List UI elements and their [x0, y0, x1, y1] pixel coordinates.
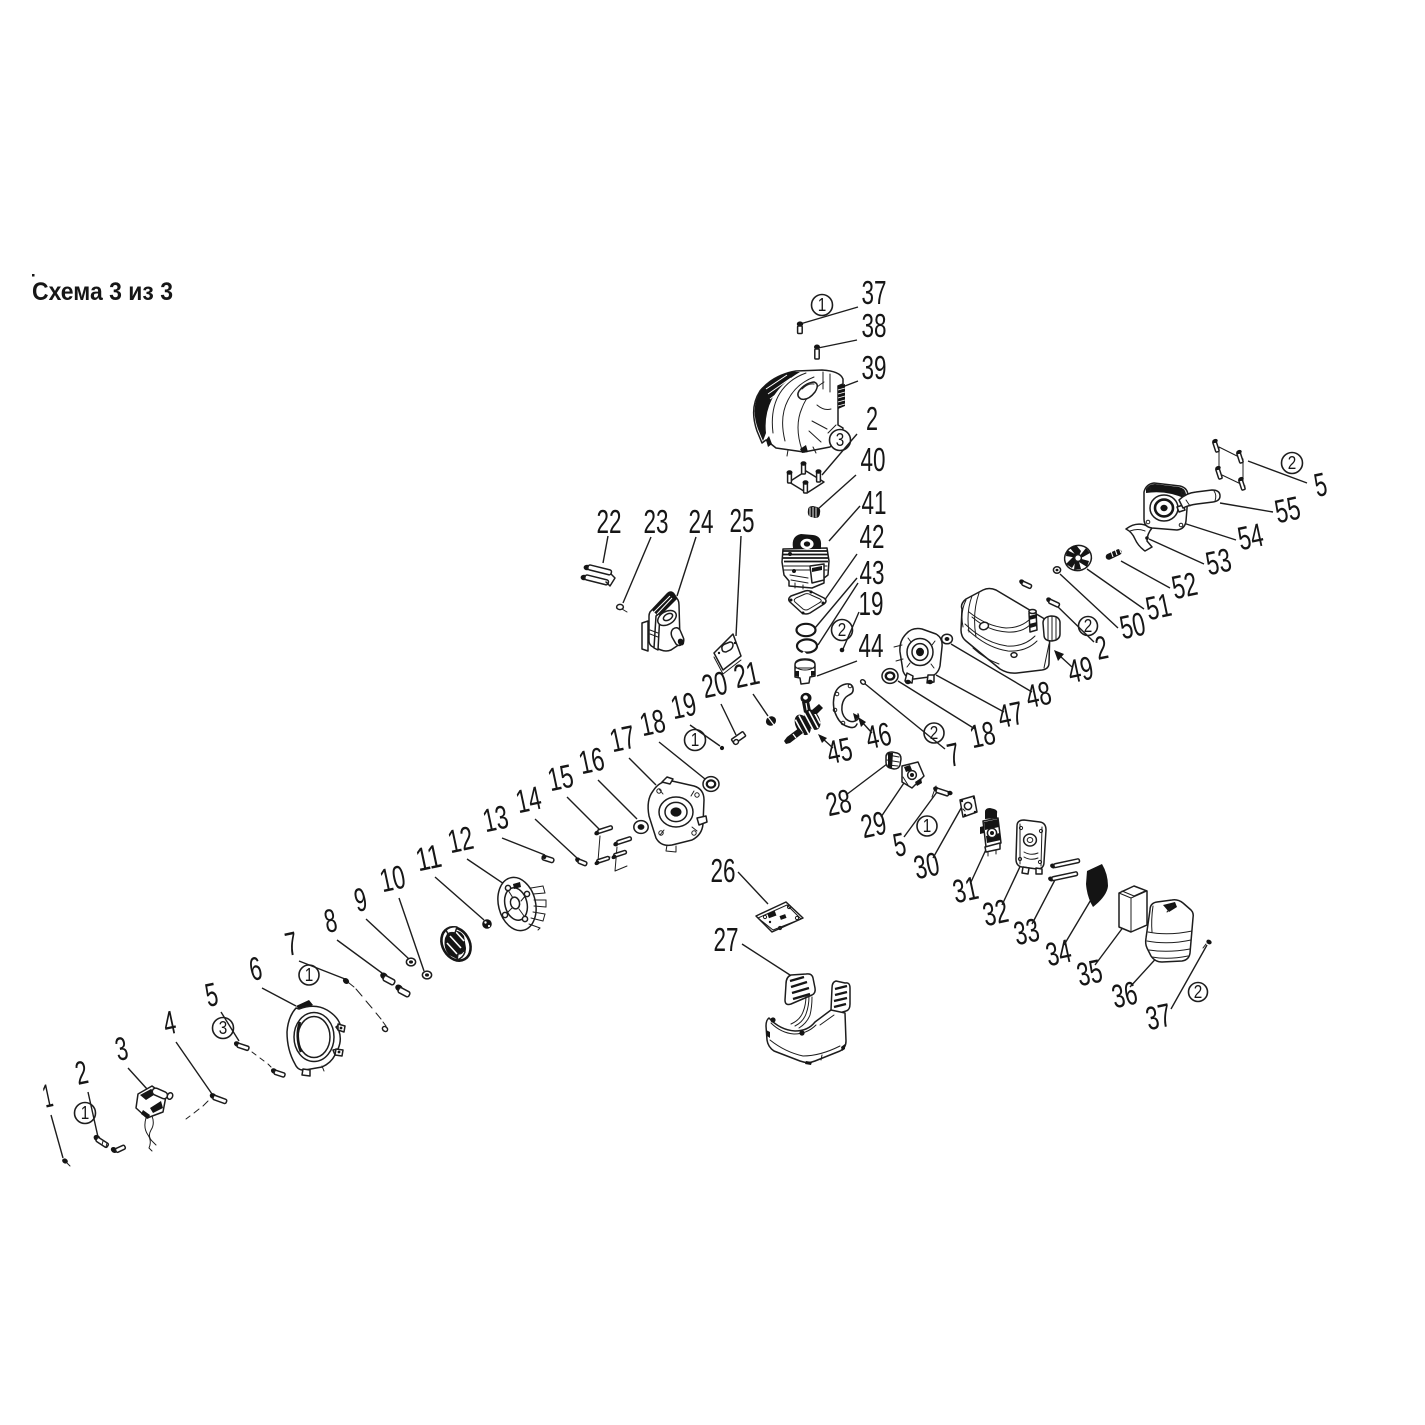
svg-text:3: 3 [836, 430, 845, 450]
svg-text:38: 38 [862, 307, 887, 344]
svg-text:Схема 3 из 3: Схема 3 из 3 [32, 278, 173, 306]
svg-text:2: 2 [866, 400, 878, 437]
svg-text:2: 2 [1194, 982, 1203, 1002]
svg-text:1: 1 [818, 295, 827, 315]
svg-text:19: 19 [859, 585, 884, 622]
svg-text:41: 41 [862, 484, 887, 521]
svg-text:40: 40 [861, 441, 886, 478]
svg-text:1: 1 [691, 730, 700, 750]
svg-text:37: 37 [862, 274, 887, 311]
svg-text:44: 44 [859, 627, 884, 664]
svg-text:22: 22 [597, 503, 622, 540]
svg-text:24: 24 [689, 503, 714, 540]
svg-text:1: 1 [305, 965, 314, 985]
svg-text:23: 23 [644, 503, 669, 540]
svg-text:2: 2 [838, 620, 847, 640]
svg-text:42: 42 [860, 518, 885, 555]
svg-text:25: 25 [730, 502, 755, 539]
svg-text:1: 1 [923, 816, 932, 836]
svg-text:26: 26 [711, 852, 736, 889]
svg-text:39: 39 [862, 349, 887, 386]
svg-text:2: 2 [1288, 453, 1297, 473]
svg-text:1: 1 [81, 1103, 90, 1123]
svg-text:27: 27 [714, 921, 739, 958]
